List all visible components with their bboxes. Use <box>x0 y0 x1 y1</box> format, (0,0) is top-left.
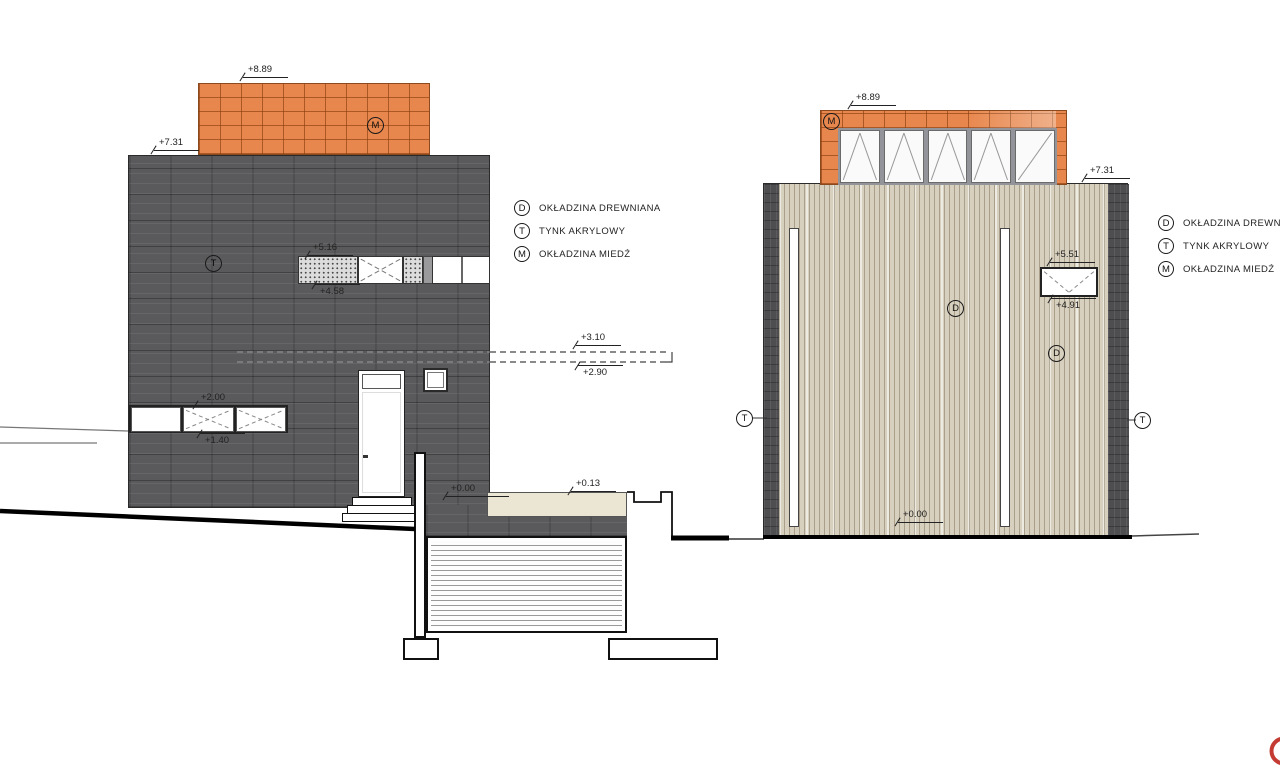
level-mark: +8.89 <box>243 64 288 78</box>
foundation-footing <box>403 638 439 660</box>
level-mark: +4.58 <box>315 284 360 298</box>
left-elevation-facade <box>128 155 490 508</box>
window-opening-icon <box>1042 269 1096 295</box>
wood-symbol-circle: D <box>947 300 964 317</box>
level-mark: +0.00 <box>898 509 943 523</box>
legend-item-label: TYNK AKRYLOWY <box>539 226 625 237</box>
plaster-strip-left <box>764 184 779 536</box>
legend-item-label: OKŁADZINA DREWNIANA <box>1183 218 1280 229</box>
legend-item: D OKŁADZINA DREWNIANA <box>514 200 661 216</box>
window-pane <box>840 130 880 183</box>
wood-symbol-circle: D <box>1048 345 1065 362</box>
wood-symbol-icon: D <box>1158 215 1174 231</box>
band-double-window <box>432 256 490 284</box>
level-mark: +0.00 <box>446 483 509 497</box>
legend-item-label: TYNK AKRYLOWY <box>1183 241 1269 252</box>
window-opening-icon <box>359 257 402 283</box>
right-window <box>1040 267 1098 297</box>
plaster-symbol-icon: T <box>1158 238 1174 254</box>
window-mullion <box>461 257 463 283</box>
plaster-symbol-circle: T <box>736 410 753 427</box>
level-mark: +2.00 <box>196 392 241 406</box>
slot-window <box>1000 228 1010 527</box>
materials-legend-left: D OKŁADZINA DREWNIANA T TYNK AKRYLOWY M … <box>514 200 661 269</box>
level-mark: +8.89 <box>851 92 896 106</box>
plaster-strip-right <box>1108 184 1129 536</box>
level-mark: +7.31 <box>1085 165 1130 179</box>
window-pane <box>971 130 1011 183</box>
section-wall <box>414 452 426 638</box>
level-mark: +7.31 <box>154 137 199 151</box>
concrete-band-segment <box>298 256 358 284</box>
level-mark: +3.10 <box>576 332 621 346</box>
window-pane <box>1015 130 1055 183</box>
garage-louver-door <box>426 536 627 633</box>
copper-symbol-icon: M <box>1158 261 1174 277</box>
window-opening-icon <box>1016 131 1054 182</box>
level-mark: +5.16 <box>308 242 353 256</box>
left-copper-roof-box <box>198 83 430 155</box>
legend-item: T TYNK AKRYLOWY <box>514 223 661 239</box>
level-mark: +1.40 <box>200 433 245 447</box>
legend-item-label: OKŁADZINA MIEDŹ <box>539 249 631 260</box>
louver-slats <box>431 541 622 627</box>
legend-item: M OKŁADZINA MIEDŹ <box>1158 261 1280 277</box>
window-opening-icon <box>237 408 285 431</box>
window-pane <box>884 130 924 183</box>
logo-mark-icon <box>1272 739 1280 764</box>
plaster-symbol-circle: T <box>205 255 222 272</box>
clerestory-window-strip <box>838 128 1057 185</box>
materials-legend-right: D OKŁADZINA DREWNIANA T TYNK AKRYLOWY M … <box>1158 215 1280 284</box>
door-leaf <box>362 392 401 493</box>
door-transom <box>362 374 401 389</box>
window-opening-icon <box>972 131 1010 182</box>
plaster-symbol-circle: T <box>1134 412 1151 429</box>
level-mark: +0.13 <box>571 478 616 492</box>
legend-item: D OKŁADZINA DREWNIANA <box>1158 215 1280 231</box>
legend-item: T TYNK AKRYLOWY <box>1158 238 1280 254</box>
plaster-symbol-icon: T <box>514 223 530 239</box>
door-handle <box>363 455 368 458</box>
band-window <box>358 256 403 284</box>
elevation-drawing-sheet: M T <box>0 0 1280 768</box>
copper-highlight <box>966 111 1056 129</box>
foundation-footing <box>608 638 718 660</box>
copper-symbol-icon: M <box>514 246 530 262</box>
legend-item: M OKŁADZINA MIEDŹ <box>514 246 661 262</box>
legend-item-label: OKŁADZINA DREWNIANA <box>539 203 661 214</box>
window-pane <box>928 130 968 183</box>
window-opening-icon <box>885 131 923 182</box>
level-mark: +2.90 <box>578 365 623 379</box>
window-pane <box>183 407 233 432</box>
section-beam <box>426 517 627 536</box>
copper-symbol-circle: M <box>367 117 384 134</box>
wood-symbol-icon: D <box>514 200 530 216</box>
slot-window <box>789 228 799 527</box>
left-window-band <box>129 405 288 433</box>
small-window <box>423 368 448 392</box>
level-mark: +5.51 <box>1050 249 1095 263</box>
window-opening-icon <box>184 408 232 431</box>
window-pane <box>236 407 286 432</box>
window-opening-icon <box>841 131 879 182</box>
copper-symbol-circle: M <box>823 113 840 130</box>
entrance-step <box>342 513 418 522</box>
window-frame <box>427 372 444 388</box>
concrete-band-segment <box>403 256 423 284</box>
legend-item-label: OKŁADZINA MIEDŹ <box>1183 264 1275 275</box>
window-pane <box>131 407 181 432</box>
right-elevation-facade <box>763 183 1128 537</box>
level-mark: +4.91 <box>1051 298 1096 312</box>
entrance-door <box>358 370 405 497</box>
window-opening-icon <box>929 131 967 182</box>
